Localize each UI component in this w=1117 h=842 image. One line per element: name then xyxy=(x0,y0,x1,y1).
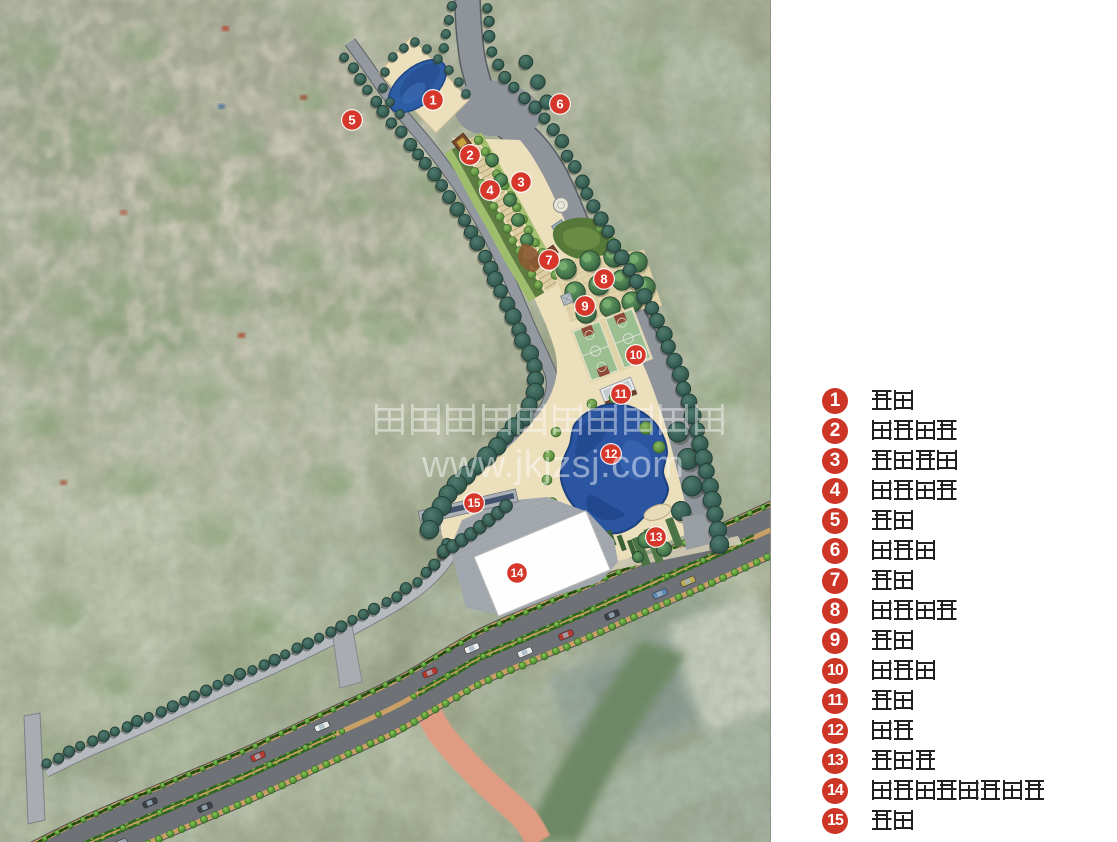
svg-text:14: 14 xyxy=(511,568,524,580)
svg-text:7: 7 xyxy=(545,253,552,268)
svg-text:5: 5 xyxy=(348,113,355,128)
svg-text:1: 1 xyxy=(429,93,436,108)
svg-text:4: 4 xyxy=(486,183,494,198)
svg-text:2: 2 xyxy=(466,148,473,163)
svg-text:9: 9 xyxy=(581,299,588,314)
svg-text:15: 15 xyxy=(468,498,481,510)
svg-text:11: 11 xyxy=(615,389,628,401)
svg-text:6: 6 xyxy=(556,97,563,112)
svg-text:8: 8 xyxy=(600,272,607,287)
svg-text:10: 10 xyxy=(630,350,643,362)
svg-text:3: 3 xyxy=(517,175,524,190)
svg-text:13: 13 xyxy=(650,532,663,544)
